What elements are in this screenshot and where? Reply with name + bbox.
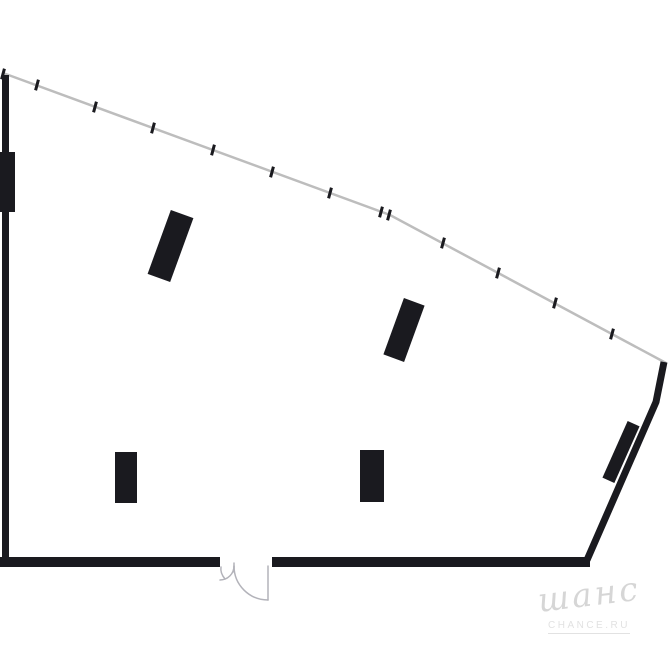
- left-wall: [2, 75, 9, 567]
- bottom-wall-right: [272, 557, 590, 567]
- door-swing: [234, 566, 268, 600]
- column-4: [360, 450, 384, 502]
- column-3: [115, 452, 137, 503]
- column-1: [148, 210, 194, 282]
- floor-plan-drawing: [0, 0, 670, 670]
- floor-plan: шанс CHANCE.RU: [0, 0, 670, 670]
- right-wall: [587, 362, 664, 560]
- door-swing: [221, 567, 225, 579]
- facade-line: [3, 73, 666, 363]
- left-wall-pier: [0, 152, 15, 212]
- bottom-wall-left: [0, 557, 220, 567]
- column-2: [383, 298, 424, 362]
